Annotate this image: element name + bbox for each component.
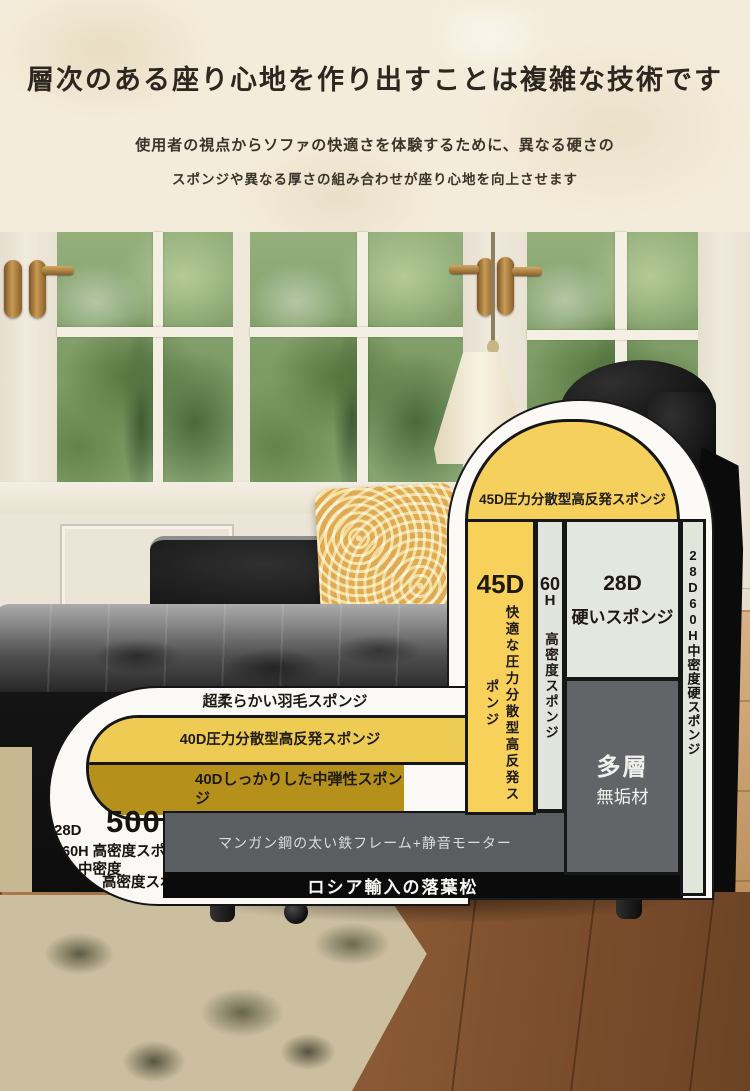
box-28d-grade: 28D (567, 572, 678, 596)
rug-sliver (0, 747, 32, 915)
page-title: 層次のある座り心地を作り出すことは複雑な技術です (0, 58, 750, 97)
window-pane-left (57, 232, 233, 482)
corner-label-500: 500 (106, 804, 161, 840)
larch-base-label: ロシア輸入の落葉松 (163, 873, 623, 898)
larch-base-band: ロシア輸入の落葉松 (163, 872, 683, 898)
solid-wood-label: 無垢材 (567, 784, 678, 809)
corner-label-28d: 28D (54, 822, 82, 839)
high-rebound-foam-band: 40D圧力分散型高反発スポンジ (89, 718, 471, 765)
window-mullion (57, 327, 233, 337)
column-45d-grade: 45D (468, 569, 533, 600)
box-solid-wood: 多層 無垢材 (564, 678, 681, 875)
dome-foam-label: 45D圧力分散型高反発スポンジ (468, 488, 677, 508)
feather-foam-label: 超柔らかい羽毛スポンジ (120, 690, 450, 711)
window-mullion (153, 232, 163, 482)
lamp-pole (491, 232, 495, 354)
door-handle-icon (4, 260, 22, 318)
door-handle-lever-icon (42, 266, 74, 275)
door-handle-lever-icon (512, 267, 542, 276)
column-right-label: 28D60H中密度硬スポンジ (684, 548, 703, 893)
column-45d-label: 快適な圧力分散型高反発スポンジ (481, 604, 521, 804)
column-60h-label: 高密度スポンジ (540, 611, 560, 761)
box-28d-label: 硬いスポンジ (567, 603, 678, 628)
steel-frame-band: マンガン鋼の太い鉄フレーム+静音モーター (163, 811, 567, 874)
banner: 層次のある座り心地を作り出すことは複雑な技術です 使用者の視点からソファの快適さ… (0, 0, 750, 233)
column-60h-foam: 60 H 高密度スポンジ (535, 519, 565, 812)
door-handle-lever-icon (449, 265, 479, 274)
column-right-foam: 28D60H中密度硬スポンジ (680, 519, 706, 896)
subtitle-line-2: スポンジや異なる厚さの組み合わせが座り心地を向上させます (0, 168, 750, 188)
window-mullion (250, 327, 463, 337)
solid-wood-title: 多層 (567, 747, 678, 782)
steel-frame-label: マンガン鋼の太い鉄フレーム+静音モーター (218, 833, 512, 853)
box-28d-foam: 28D 硬いスポンジ (564, 519, 681, 680)
lamp-finial (487, 340, 499, 354)
door-handle-icon (497, 257, 514, 315)
window-frame (233, 232, 250, 514)
window-mullion (527, 330, 698, 340)
window-mullion (357, 232, 368, 482)
subtitle-line-1: 使用者の視点からソファの快適さを体験するために、異なる硬さの (0, 134, 750, 155)
column-45d-foam: 45D 快適な圧力分散型高反発スポンジ (465, 519, 536, 815)
page: 層次のある座り心地を作り出すことは複雑な技術です 使用者の視点からソファの快適さ… (0, 0, 750, 1091)
